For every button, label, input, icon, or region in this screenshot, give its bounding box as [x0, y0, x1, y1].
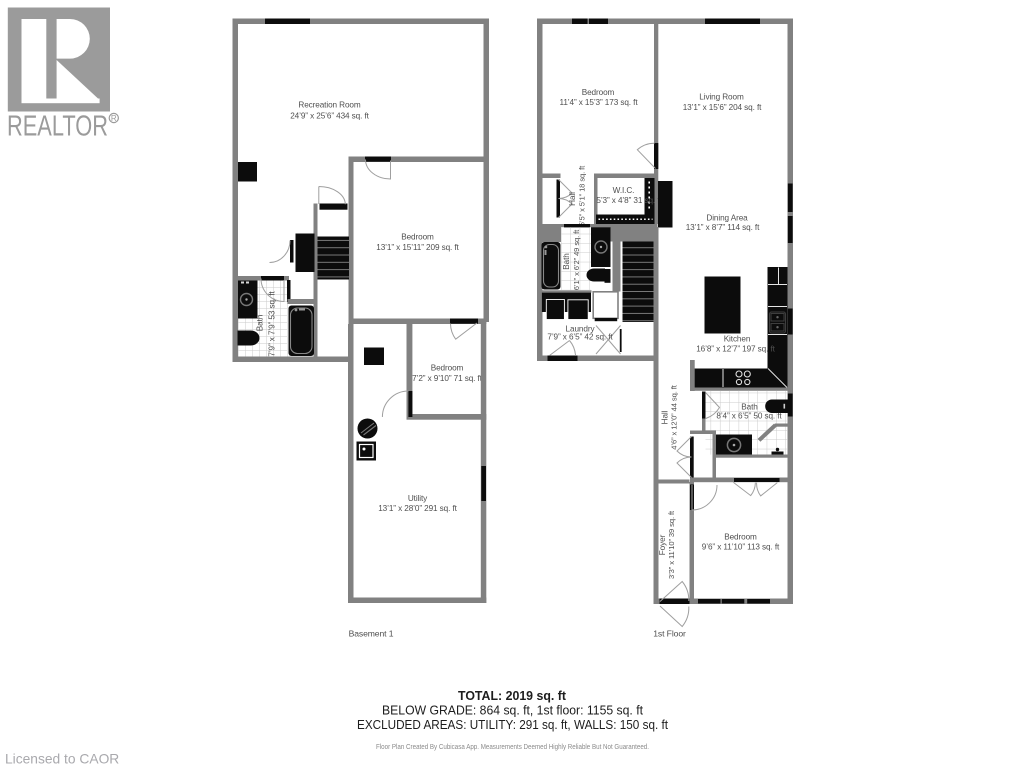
svg-text:1st Floor: 1st Floor: [653, 629, 686, 639]
svg-text:R: R: [111, 114, 117, 123]
svg-text:9’6” x 11’10” 113 sq. ft: 9’6” x 11’10” 113 sq. ft: [702, 543, 780, 552]
svg-text:Bedroom: Bedroom: [724, 533, 757, 542]
svg-text:EXCLUDED AREAS: UTILITY: 291 s: EXCLUDED AREAS: UTILITY: 291 sq. ft, WAL…: [357, 717, 668, 732]
svg-text:7’9” x 6’5” 42 sq. ft: 7’9” x 6’5” 42 sq. ft: [547, 333, 613, 342]
svg-text:Bedroom: Bedroom: [582, 88, 615, 97]
svg-text:Living Room: Living Room: [699, 93, 744, 102]
svg-text:5’5” x 5’1” 18 sq. ft: 5’5” x 5’1” 18 sq. ft: [578, 165, 587, 226]
svg-text:Licensed to CAOR: Licensed to CAOR: [5, 752, 119, 767]
svg-text:13’1” x 15’6” 204 sq. ft: 13’1” x 15’6” 204 sq. ft: [683, 103, 762, 112]
svg-text:Dining Area: Dining Area: [706, 214, 748, 223]
svg-text:Hall: Hall: [661, 410, 670, 424]
svg-text:Floor Plan Created By Cubicasa: Floor Plan Created By Cubicasa App. Meas…: [376, 742, 649, 751]
svg-text:Bath: Bath: [741, 403, 758, 412]
svg-text:Bath: Bath: [562, 253, 571, 270]
svg-text:Kitchen: Kitchen: [724, 335, 751, 344]
svg-text:6’1” x 6’2” 49 sq. ft: 6’1” x 6’2” 49 sq. ft: [572, 229, 581, 290]
svg-text:Foyer: Foyer: [658, 534, 667, 555]
svg-text:4’6” x 12’0” 44 sq. ft: 4’6” x 12’0” 44 sq. ft: [670, 384, 679, 449]
svg-text:5’3” x 4’8” 31 sq. ft: 5’3” x 4’8” 31 sq. ft: [596, 196, 662, 205]
svg-text:Hall: Hall: [568, 192, 577, 206]
svg-text:16’8” x 12’7” 197 sq. ft: 16’8” x 12’7” 197 sq. ft: [696, 345, 775, 354]
svg-text:13’1” x 28’0” 291 sq. ft: 13’1” x 28’0” 291 sq. ft: [378, 504, 457, 513]
svg-text:W.I.C.: W.I.C.: [613, 186, 635, 195]
svg-text:Utility: Utility: [408, 494, 428, 503]
svg-text:7’9” x 7’9” 53 sq. ft: 7’9” x 7’9” 53 sq. ft: [268, 291, 277, 357]
svg-text:BELOW GRADE: 864 sq. ft, 1st f: BELOW GRADE: 864 sq. ft, 1st floor: 1155…: [382, 703, 643, 718]
svg-text:Bath: Bath: [256, 314, 265, 331]
svg-text:Bedroom: Bedroom: [401, 233, 434, 242]
svg-text:24’9” x 25’6” 434 sq. ft: 24’9” x 25’6” 434 sq. ft: [290, 112, 369, 121]
svg-text:13’1” x 8’7” 114 sq. ft: 13’1” x 8’7” 114 sq. ft: [686, 223, 760, 232]
svg-text:11’4” x 15’3” 173 sq. ft: 11’4” x 15’3” 173 sq. ft: [559, 98, 638, 107]
svg-text:3’3” x 11’10” 39 sq. ft: 3’3” x 11’10” 39 sq. ft: [667, 510, 676, 579]
svg-text:13’1” x 15’11” 209 sq. ft: 13’1” x 15’11” 209 sq. ft: [376, 243, 459, 252]
svg-text:7’2” x 9’10” 71 sq. ft: 7’2” x 9’10” 71 sq. ft: [412, 374, 483, 383]
svg-text:Recreation Room: Recreation Room: [298, 101, 360, 110]
svg-text:Bedroom: Bedroom: [431, 364, 464, 373]
svg-text:REALTOR: REALTOR: [7, 111, 108, 143]
svg-text:TOTAL: 2019 sq. ft: TOTAL: 2019 sq. ft: [458, 688, 567, 703]
svg-text:Basement 1: Basement 1: [349, 629, 394, 639]
